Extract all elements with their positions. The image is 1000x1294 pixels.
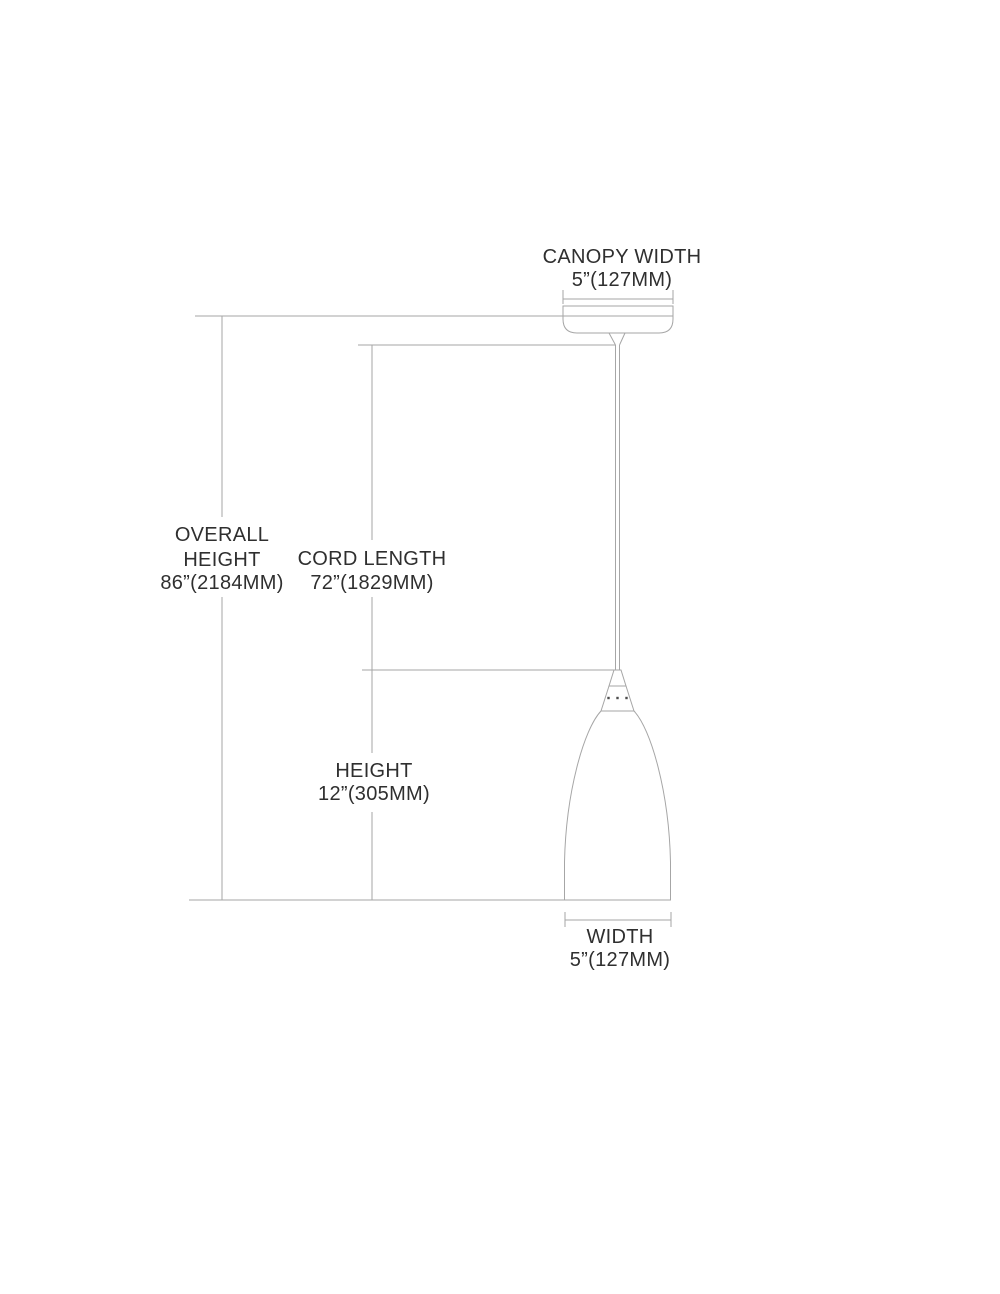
diagram-canvas: CANOPY WIDTH 5”(127MM) OVERALL HEIGHT 86… — [0, 0, 1000, 1294]
height-label: HEIGHT — [335, 760, 412, 782]
canopy-outline — [563, 306, 673, 333]
overall-height-label-line1: OVERALL — [175, 524, 269, 546]
canopy-stem-cone — [609, 333, 625, 345]
screw-dots — [607, 697, 627, 699]
fixture-outline — [563, 306, 673, 900]
canopy-width-value: 5”(127MM) — [572, 269, 673, 291]
screw-dot-left — [607, 697, 609, 699]
pendant-dimension-diagram: CANOPY WIDTH 5”(127MM) OVERALL HEIGHT 86… — [0, 0, 1000, 1294]
cord-lines — [616, 345, 620, 670]
socket-upper — [609, 670, 626, 686]
dimension-lines — [189, 290, 673, 927]
height-value: 12”(305MM) — [318, 783, 430, 805]
overall-height-value: 86”(2184MM) — [160, 572, 283, 594]
screw-dot-center — [616, 697, 618, 699]
overall-height-label-line2: HEIGHT — [183, 549, 260, 571]
shade-outline — [565, 711, 671, 900]
screw-dot-right — [625, 697, 627, 699]
canopy-width-label: CANOPY WIDTH — [543, 246, 702, 268]
cord-length-value: 72”(1829MM) — [310, 572, 433, 594]
width-value: 5”(127MM) — [570, 949, 671, 971]
width-label: WIDTH — [586, 926, 653, 948]
cord-length-label: CORD LENGTH — [298, 548, 447, 570]
dimension-labels: CANOPY WIDTH 5”(127MM) OVERALL HEIGHT 86… — [160, 246, 701, 971]
